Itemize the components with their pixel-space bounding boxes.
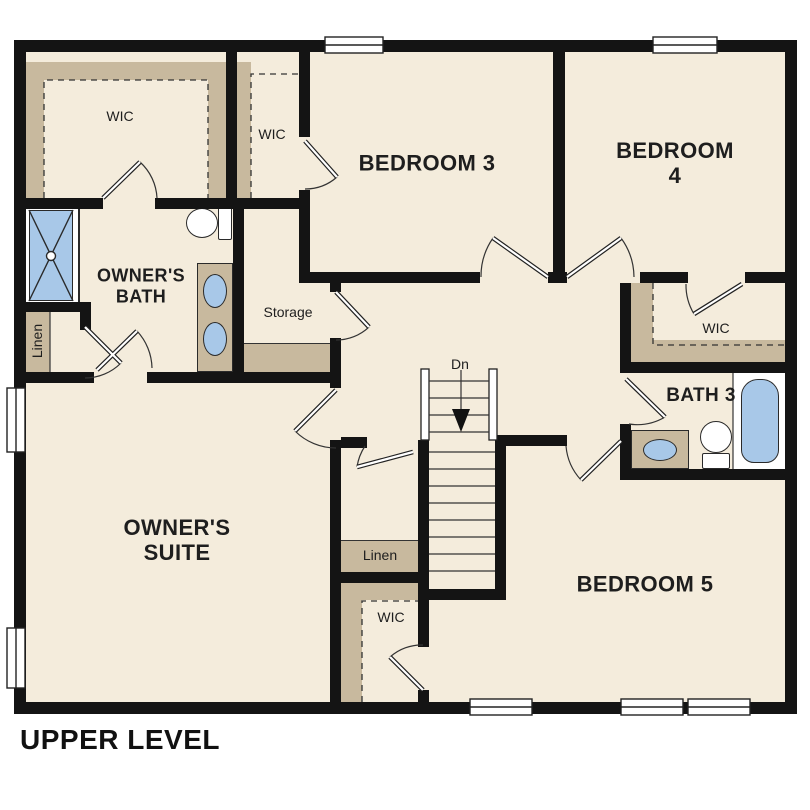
room-label-linen-hall: Linen bbox=[363, 548, 397, 564]
door-leaves bbox=[85, 141, 742, 690]
stairs-direction-label: Dn bbox=[451, 357, 469, 373]
room-label-bedroom-5: BEDROOM 5 bbox=[577, 571, 714, 596]
staircase bbox=[421, 369, 497, 571]
floor-plan: WIC WIC BEDROOM 3 BEDROOM 4 OWNER'S BATH… bbox=[0, 0, 810, 810]
room-label-wic-bedroom-3: WIC bbox=[258, 127, 285, 143]
room-label-wic-bedroom-4: WIC bbox=[702, 321, 729, 337]
floor-level-title: UPPER LEVEL bbox=[20, 724, 220, 756]
stair-down-arrow-icon bbox=[452, 409, 470, 432]
room-label-bath-3: BATH 3 bbox=[666, 385, 736, 407]
room-label-bedroom-4: BEDROOM 4 bbox=[608, 138, 743, 188]
room-label-owners-suite: OWNER'S SUITE bbox=[123, 515, 230, 565]
doors bbox=[85, 141, 742, 690]
fixture-edge-lines bbox=[50, 312, 733, 469]
room-label-bedroom-3: BEDROOM 3 bbox=[359, 150, 496, 175]
shower-x-icon bbox=[29, 210, 73, 301]
room-label-wic-owners: WIC bbox=[106, 109, 133, 125]
room-label-linen-owners: Linen bbox=[30, 324, 46, 358]
room-label-wic-bedroom-5: WIC bbox=[377, 610, 404, 626]
room-label-owners-bath: OWNER'S BATH bbox=[97, 265, 185, 306]
room-label-storage: Storage bbox=[263, 305, 312, 321]
